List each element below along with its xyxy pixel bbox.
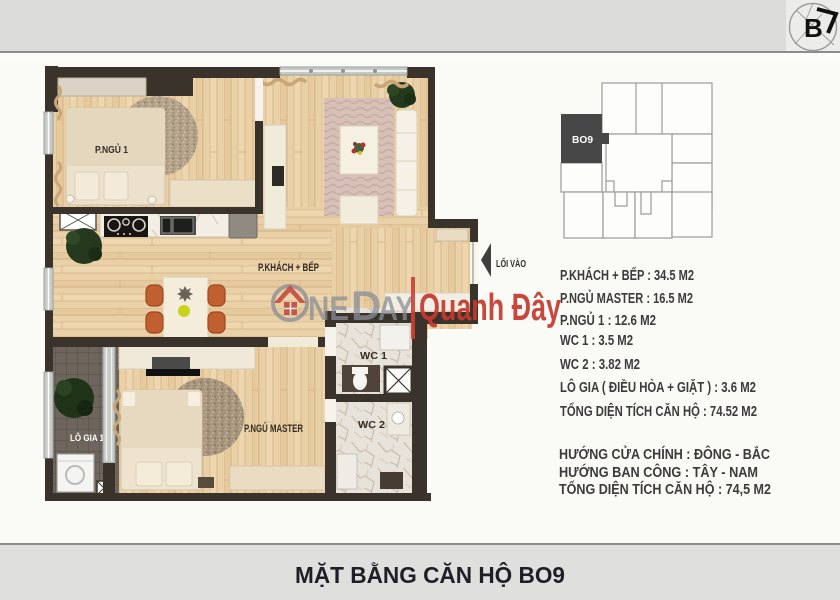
svg-text:HƯỚNG CỬA CHÍNH : ĐÔNG - BẮC: HƯỚNG CỬA CHÍNH : ĐÔNG - BẮC [559, 445, 770, 463]
svg-text:LỐI VÀO: LỐI VÀO [496, 256, 526, 270]
svg-text:AY: AY [378, 290, 414, 328]
svg-text:TỔNG DIỆN TÍCH CĂN HỘ : 74,5 M: TỔNG DIỆN TÍCH CĂN HỘ : 74,5 M2 [559, 480, 771, 498]
svg-text:HƯỚNG BAN CÔNG : TÂY - NAM: HƯỚNG BAN CÔNG : TÂY - NAM [559, 463, 758, 481]
svg-text:P.NGỦ MASTER : 16.5 M2: P.NGỦ MASTER : 16.5 M2 [560, 289, 693, 307]
svg-text:P.NGỦ MASTER: P.NGỦ MASTER [244, 422, 303, 435]
svg-text:WC 1: WC 1 [360, 351, 387, 362]
svg-text:B: B [804, 13, 823, 43]
svg-text:TỔNG DIỆN TÍCH CĂN HỘ : 74.52: TỔNG DIỆN TÍCH CĂN HỘ : 74.52 M2 [560, 402, 757, 420]
svg-text:LÔ GIA ( ĐIỀU HÒA + GIẶT ) :: LÔ GIA ( ĐIỀU HÒA + GIẶT ) : 3.6 M2 [560, 378, 756, 396]
svg-text:Quanh Đây: Quanh Đây [419, 287, 561, 329]
svg-text:D: D [351, 282, 381, 329]
svg-text:LÔ GIA 1: LÔ GIA 1 [70, 432, 104, 443]
svg-text:NE: NE [308, 290, 349, 328]
svg-text:P.KHÁCH + BẾP: P.KHÁCH + BẾP [258, 261, 319, 274]
svg-text:WC 2 : 3.82 M2: WC 2 : 3.82 M2 [560, 357, 640, 373]
svg-text:P.NGỦ 1: P.NGỦ 1 [95, 143, 128, 156]
svg-text:P.KHÁCH + BẾP : 34.5 M2: P.KHÁCH + BẾP : 34.5 M2 [560, 267, 694, 284]
svg-text:BO9: BO9 [572, 135, 593, 146]
svg-text:WC 2: WC 2 [358, 420, 385, 431]
svg-text:P.NGỦ 1 : 12.6 M2: P.NGỦ 1 : 12.6 M2 [560, 311, 656, 329]
svg-text:MẶT BẰNG CĂN HỘ BO9: MẶT BẰNG CĂN HỘ BO9 [295, 561, 565, 588]
svg-text:WC 1 : 3.5 M2: WC 1 : 3.5 M2 [560, 333, 633, 349]
